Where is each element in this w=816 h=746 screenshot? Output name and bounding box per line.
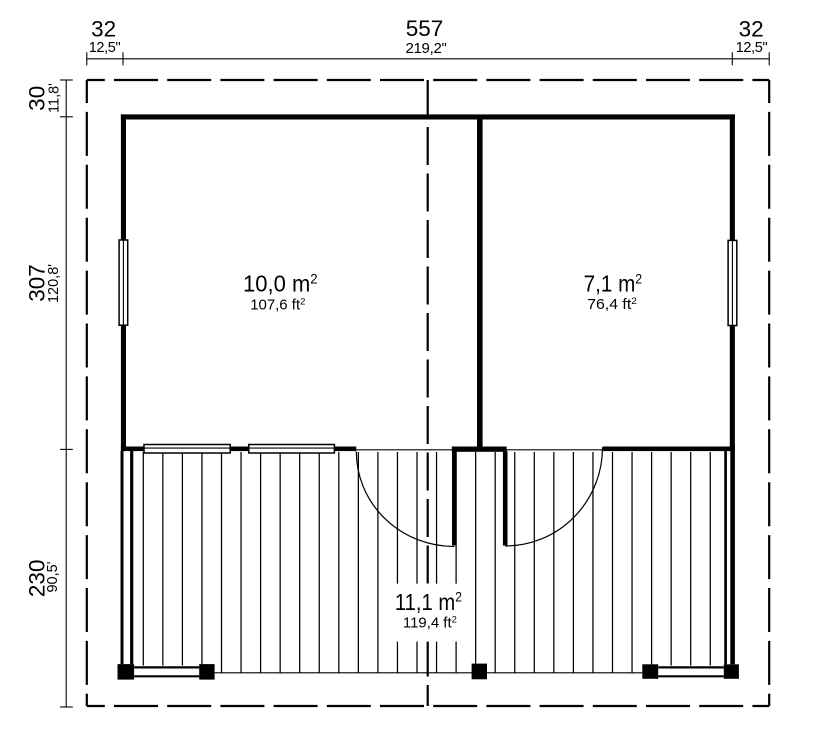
svg-text:557: 557 xyxy=(406,16,444,41)
svg-text:11,8': 11,8' xyxy=(46,83,62,113)
svg-text:32: 32 xyxy=(91,16,116,41)
svg-text:12,5": 12,5" xyxy=(736,40,768,56)
svg-text:32: 32 xyxy=(739,16,764,41)
svg-text:7,1 m2: 7,1 m2 xyxy=(584,270,643,296)
svg-text:76,4 ft2: 76,4 ft2 xyxy=(587,296,637,313)
svg-text:120,8': 120,8' xyxy=(46,264,62,303)
svg-text:11,1 m2: 11,1 m2 xyxy=(395,589,462,615)
svg-text:107,6 ft2: 107,6 ft2 xyxy=(250,297,305,314)
svg-text:119,4 ft2: 119,4 ft2 xyxy=(403,615,457,632)
svg-text:10,0 m2: 10,0 m2 xyxy=(243,270,318,296)
svg-text:12,5": 12,5" xyxy=(89,40,121,56)
svg-text:219,2": 219,2" xyxy=(405,40,446,57)
svg-text:90,5': 90,5' xyxy=(45,561,61,592)
